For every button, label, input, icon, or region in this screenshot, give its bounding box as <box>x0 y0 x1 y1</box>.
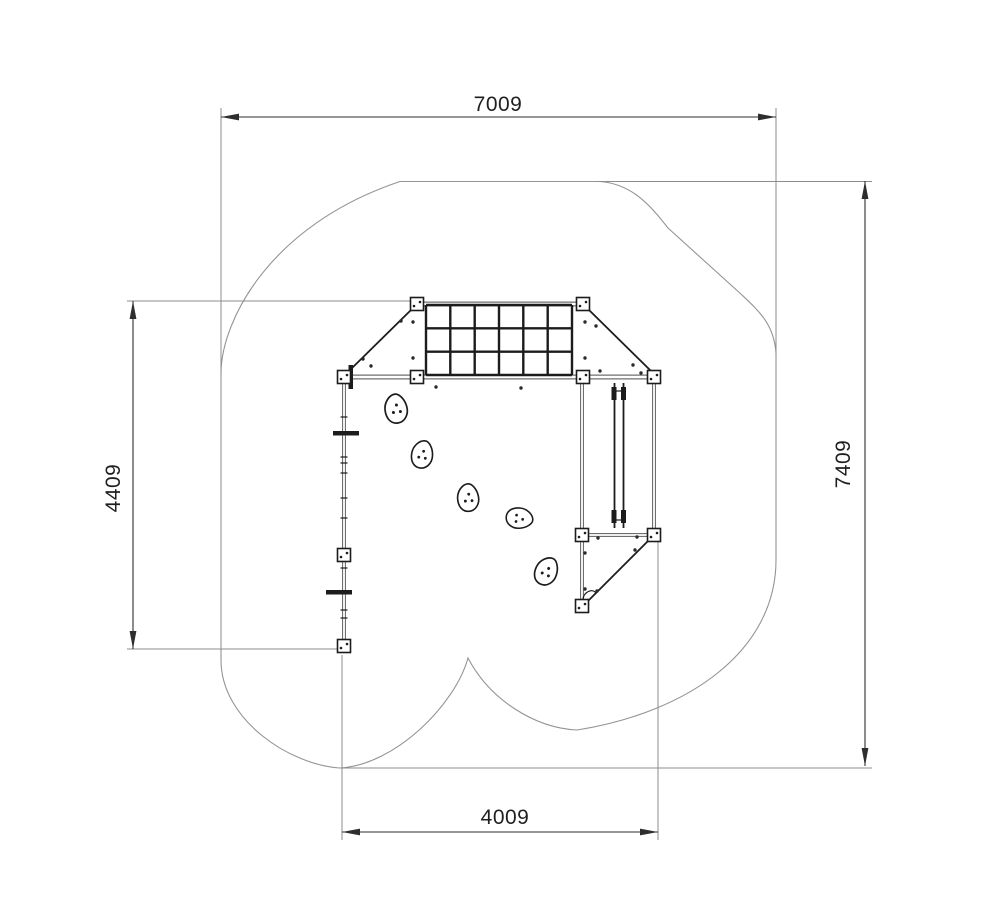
extension-lines <box>127 108 872 840</box>
dimension-bottom: 4009 <box>342 806 658 835</box>
dimension-top: 7009 <box>221 93 776 120</box>
post-marker <box>577 371 590 384</box>
technical-drawing-canvas: 7009 7409 4409 4009 <box>0 0 1001 901</box>
arrowhead-down-icon <box>130 631 137 649</box>
post-marker <box>576 600 589 613</box>
diagonal-right <box>589 310 651 371</box>
post-marker <box>338 549 351 562</box>
ladder-clamp <box>621 510 626 523</box>
ladder-clamp <box>621 387 626 400</box>
ladder-clamp <box>612 510 617 523</box>
arrowhead-right-icon <box>758 114 776 121</box>
safety-area-path <box>221 182 776 769</box>
arrowhead-left-icon <box>221 114 239 121</box>
safety-area-outline <box>221 182 776 769</box>
post-marker <box>411 298 424 311</box>
arrowhead-down-icon <box>862 748 869 766</box>
post-marker <box>648 529 661 542</box>
dimension-value-right: 7409 <box>832 440 855 489</box>
post-marker <box>411 371 424 384</box>
arrowhead-right-icon <box>640 829 658 836</box>
climbing-stone <box>505 507 533 530</box>
climbing-stone <box>383 393 409 425</box>
attachment-dots <box>361 319 642 592</box>
climbing-stone <box>409 439 434 470</box>
dimension-left: 4409 <box>102 301 136 649</box>
dimension-right: 7409 <box>832 181 868 766</box>
post-marker <box>338 640 351 653</box>
dimension-value-top: 7009 <box>474 93 523 116</box>
post-marker <box>338 371 351 384</box>
dimension-value-left: 4409 <box>102 464 125 513</box>
dimension-value-bottom: 4009 <box>481 806 530 829</box>
ladder-clamp <box>612 387 617 400</box>
diagonal-left <box>349 310 411 371</box>
arrowhead-up-icon <box>130 301 137 319</box>
climbing-stone <box>457 483 480 512</box>
crossbar-step <box>333 431 359 436</box>
climbing-stone <box>531 554 563 589</box>
post-marker <box>577 298 590 311</box>
arrowhead-left-icon <box>342 829 360 836</box>
climbing-net-grid <box>426 305 572 375</box>
post-marker <box>576 529 589 542</box>
climbing-stones <box>383 393 562 589</box>
crossbar-step <box>326 590 352 595</box>
ladder <box>612 383 627 528</box>
post-marker <box>648 371 661 384</box>
plan-drawing: 7009 7409 4409 4009 <box>0 0 1001 901</box>
arrowhead-up-icon <box>862 181 869 199</box>
